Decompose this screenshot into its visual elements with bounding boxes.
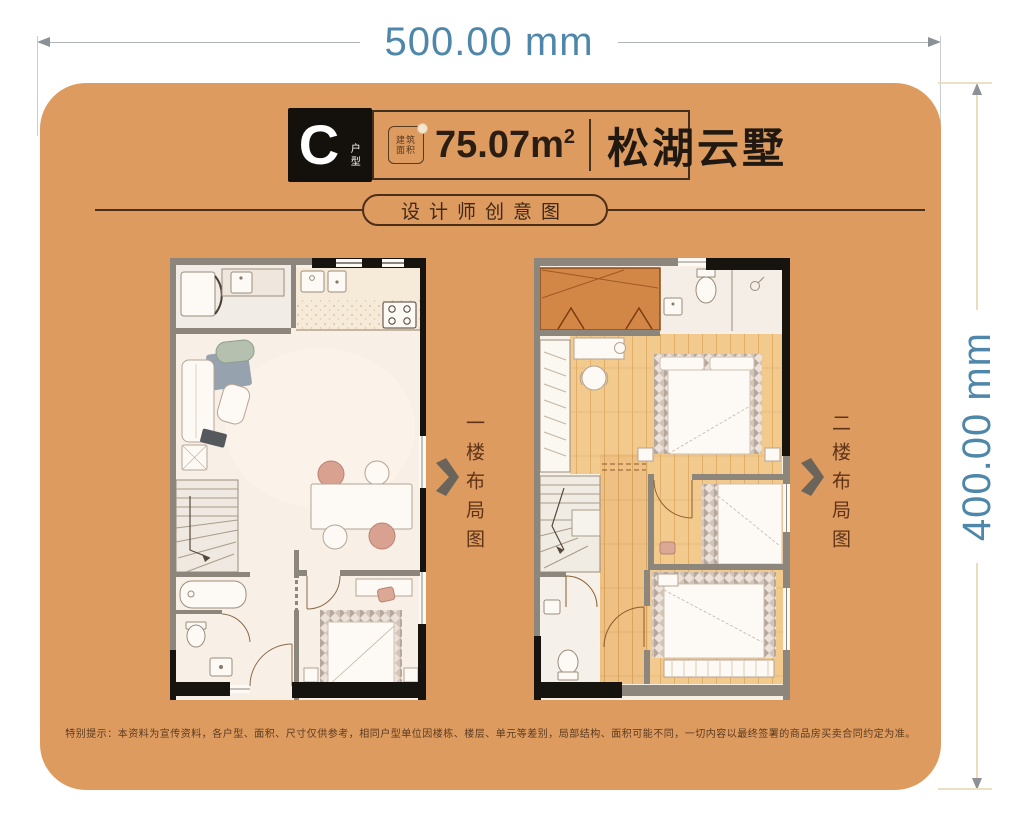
dimension-arrow-up-icon [972,83,982,95]
disclaimer-text: 特别提示：本资料为宣传资料，各户型、面积、尺寸仅供参考，相同户型单位因楼栋、楼层… [40,725,941,740]
width-dimension-label: 500.00 mm [360,20,617,65]
dimension-extension-line [938,788,992,790]
area-badge-line2: 面积 [396,145,416,155]
project-name: 松湖云墅 [607,115,787,176]
dimension-extension-line [938,82,992,84]
banner-line-right [608,209,925,211]
floorplan-card: C 户型 建筑 面积 75.07m2 松湖云墅 设计师创意图 [40,83,941,790]
height-dimension-label: 400.00 mm [955,310,1000,563]
header-divider [589,119,591,171]
terrace [540,268,660,330]
header-info-box: 建筑 面积 75.07m2 松湖云墅 [372,110,690,180]
floor-plan-2f [534,258,790,700]
bathroom-2f-bottom-fixtures [540,576,598,682]
floor-plan-1f-drawing [170,258,426,700]
unit-letter: C [299,117,339,173]
dimension-line [618,42,928,43]
area-value: 75.07m2 [435,124,575,167]
height-dimension: 400.00 mm [952,83,1002,790]
bedroom-2f-bottom [652,572,776,677]
dimension-line [976,95,978,310]
dimension-extension-line [37,36,38,136]
floor-plan-1f-caption: 一楼布局图 [460,413,487,558]
floor-plan-2f-drawing [534,258,790,700]
staircase-1f [176,480,238,572]
area-superscript: 2 [564,126,575,148]
dimension-arrow-left-icon [37,37,50,47]
area-badge-line1: 建筑 [396,135,416,145]
floor-plan-2f-caption: 二楼布局图 [826,413,853,558]
unit-type-block: C 户型 [288,108,372,182]
floor-plan-1f [170,258,426,700]
arrow-right-icon [799,455,825,499]
arrow-right-icon [434,455,460,499]
wardrobe [540,340,570,472]
banner-line-left [95,209,362,211]
width-dimension: 500.00 mm [37,20,941,64]
banner-title: 设计师创意图 [362,194,608,226]
dimension-line [976,563,978,778]
poster-canvas: 500.00 mm 400.00 mm C 户型 建筑 面积 75.07m2 松… [0,0,1025,828]
dimension-line [50,42,360,43]
area-badge: 建筑 面积 [388,126,424,164]
staircase-2f [540,476,600,572]
unit-suffix-label: 户型 [346,143,361,169]
bedroom-2f-main [638,354,780,461]
